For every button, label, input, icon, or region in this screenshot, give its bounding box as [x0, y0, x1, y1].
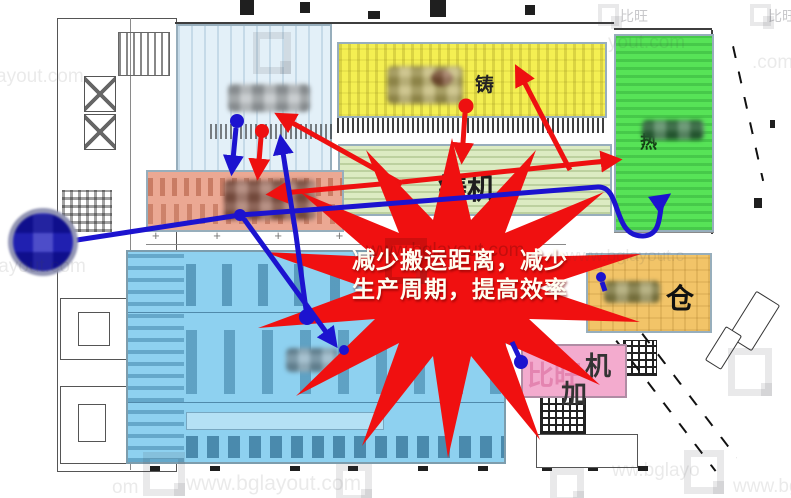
- dock-hatch: [337, 116, 607, 133]
- room-inner: [78, 312, 110, 346]
- grid-tick: [525, 5, 535, 15]
- grid-tick: [210, 466, 220, 471]
- bglayout-logo-icon: [143, 452, 185, 496]
- plant-layout-diagram: + + + + + + + 铸 热: [0, 0, 791, 498]
- censored-label: [224, 180, 316, 220]
- watermark-text: www.bglayout.c: [566, 246, 684, 266]
- watermark-text: www.bglayout.com: [186, 472, 361, 496]
- zone-salmon-die-area: [146, 170, 344, 232]
- zone-label-casting: 铸: [475, 70, 494, 97]
- zone-line: [128, 402, 504, 403]
- watermark-text: om: [112, 477, 138, 498]
- bglayout-logo-icon: [253, 32, 291, 74]
- bglayout-logo-icon: [550, 468, 584, 498]
- watermark-text: .com: [752, 52, 791, 74]
- zone-label-die-cast: 铸机: [438, 166, 496, 208]
- zone-pattern: [186, 436, 504, 458]
- elevator-shaft: [84, 114, 116, 150]
- elevator-shaft: [84, 76, 116, 112]
- bglayout-logo-icon: [728, 348, 772, 396]
- censored-label: [228, 84, 310, 112]
- zone-pattern: [128, 252, 184, 462]
- grid-tick: [300, 2, 310, 13]
- bglayout-logo-icon: [336, 464, 372, 498]
- grid-tick: [478, 466, 488, 471]
- zone-pattern: [339, 44, 605, 116]
- censored-label: [387, 66, 463, 104]
- zone-label-warehouse: 仓: [666, 277, 694, 317]
- grid-tick: [240, 0, 254, 15]
- zone-strip: [186, 412, 384, 430]
- censored-label: [642, 120, 704, 140]
- zone-line: [128, 312, 504, 313]
- wall-line: [614, 28, 712, 30]
- watermark-text: www.bglayou: [733, 476, 791, 498]
- zone-label-machining-1: 机: [585, 346, 611, 383]
- plan-mark: [770, 120, 775, 128]
- watermark-text: yout.com: [608, 32, 685, 54]
- censored-label: [604, 281, 660, 303]
- grid-tick: [290, 466, 300, 471]
- censored-label: [286, 348, 338, 372]
- zone-machining-pink: 比旺 机 加: [521, 344, 627, 398]
- zone-die-casting-band: 铸机: [338, 144, 612, 216]
- bglayout-logo-icon: [684, 450, 724, 494]
- zone-label-machining-2: 加: [561, 374, 587, 411]
- zone-machines: [210, 124, 334, 139]
- bglayout-logo-icon: [750, 4, 771, 26]
- plan-mark: [754, 198, 762, 208]
- bglayout-logo-icon: [598, 4, 619, 26]
- brand-name: 比旺: [620, 6, 648, 26]
- zone-pattern: [186, 330, 504, 394]
- blue-stub: [512, 342, 519, 357]
- grid-tick: [418, 466, 428, 471]
- censored-label: [431, 70, 453, 86]
- callout-line-2: 生产周期，提高效率: [352, 275, 608, 304]
- zone-green-heat-treatment: 热: [614, 34, 714, 232]
- watermark-text: ayout.com: [0, 66, 84, 88]
- room-inner: [78, 404, 106, 442]
- grid-tick: [368, 11, 380, 19]
- watermark-text: layout.com: [0, 256, 86, 278]
- stairs: [118, 32, 170, 76]
- grid-tick: [430, 0, 446, 17]
- zone-yellow-casting: 铸: [337, 42, 607, 118]
